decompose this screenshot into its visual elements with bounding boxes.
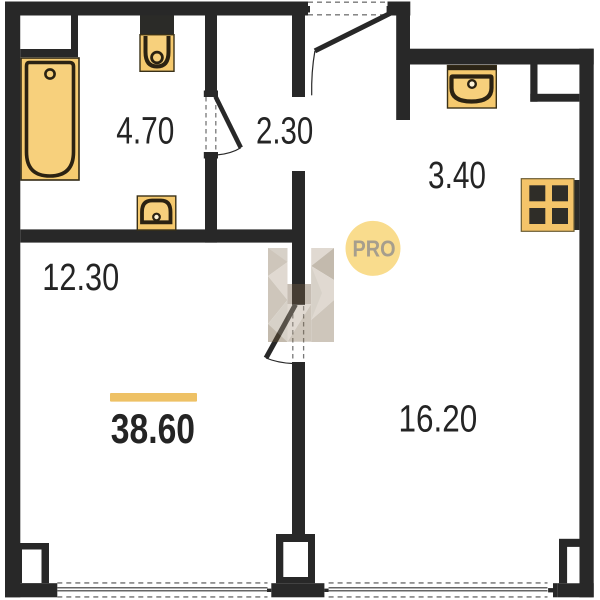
svg-text:2.30: 2.30 [256,111,313,153]
svg-text:12.30: 12.30 [42,257,119,299]
svg-text:16.20: 16.20 [399,399,478,441]
svg-text:3.40: 3.40 [428,155,486,197]
svg-text:4.70: 4.70 [116,111,174,153]
svg-text:PRO: PRO [353,235,396,261]
svg-text:38.60: 38.60 [111,405,195,452]
